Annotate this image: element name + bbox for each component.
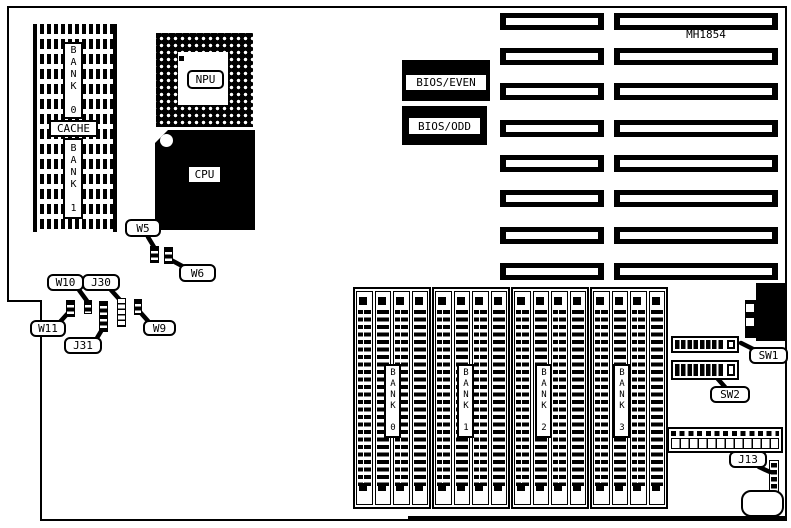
sw1-switch-positions [675,340,724,349]
simm-socket [435,291,452,505]
expansion-slot [500,120,604,137]
keyboard-connector-notch [746,318,754,326]
expansion-slot [614,263,778,280]
slot-stripe [620,125,772,132]
jumper-w10 [84,300,92,314]
cache-bank0-label: BANK 0 [63,42,83,119]
expansion-slot [500,13,604,30]
expansion-slot [500,263,604,280]
sw2-switch-positions [675,364,724,376]
callout-j13: J13 [729,451,767,468]
npu-chip: NPU [156,33,253,127]
npu-label: NPU [187,70,224,89]
rounded-component-outline [741,490,784,517]
simm-socket [570,291,587,505]
slot-stripe [620,160,772,167]
simm-bank0-label: BANK 0 [384,364,401,438]
simm-socket [649,291,666,505]
expansion-slot [500,48,604,65]
simm-socket [356,291,373,505]
sw1-end-box [727,340,735,349]
dip-switch-sw2 [671,360,739,380]
expansion-slot [614,120,778,137]
keyboard-connector-notch [746,304,754,312]
board-edge-thick [408,516,786,521]
simm-bank2-label: BANK 2 [535,364,552,438]
slot-stripe [620,268,772,275]
slot-stripe [506,268,598,275]
expansion-slot [614,155,778,172]
slot-stripe [506,18,598,25]
connector-socket-row [671,438,779,449]
cpu-label: CPU [189,167,220,182]
slot-stripe [620,195,772,202]
slot-stripe [506,88,598,95]
slot-stripe [506,195,598,202]
simm-bank3-label: BANK 3 [613,364,630,438]
connector-pin-row [671,431,779,436]
slot-stripe [506,160,598,167]
expansion-slot [500,227,604,244]
edge-pin-connector [667,427,783,453]
slot-stripe [620,232,772,239]
callout-w5: W5 [125,219,161,237]
slot-stripe [620,88,772,95]
jumper-w5 [150,246,159,263]
npu-pin1-dot [179,56,184,61]
simm-socket [593,291,610,505]
slot-stripe [506,125,598,132]
bios-odd-label: BIOS/ODD [407,116,482,136]
expansion-slot [614,83,778,100]
slot-stripe [620,53,772,60]
jumper-w11 [66,300,75,317]
cpu-chip: CPU [155,130,255,230]
callout-j30: J30 [82,274,120,291]
expansion-slot [500,190,604,207]
motherboard-diagram: BANK 0 CACHE BANK 1 NPU CPU BIOS/EVEN BI… [0,0,791,528]
cache-bank1-label: BANK 1 [63,138,83,219]
jumper-w6 [164,247,173,264]
expansion-slot [614,190,778,207]
expansion-slot [614,13,778,30]
keyboard-connector [756,283,785,341]
simm-socket [630,291,647,505]
callout-sw2: SW2 [710,386,750,403]
simm-socket [472,291,489,505]
header-j30 [117,298,126,327]
jumper-w9 [134,299,142,315]
simm-socket [412,291,429,505]
header-j31 [99,301,108,332]
expansion-slot [500,155,604,172]
slot-stripe [620,18,772,25]
simm-socket [491,291,508,505]
callout-sw1: SW1 [749,347,788,364]
cache-label: CACHE [49,120,98,137]
simm-socket [514,291,531,505]
bios-even-label: BIOS/EVEN [404,73,488,92]
simm-socket [551,291,568,505]
header-j13 [769,460,779,492]
simm-bank1-label: BANK 1 [457,364,474,438]
expansion-slot [614,48,778,65]
slot-stripe [506,232,598,239]
callout-w10: W10 [47,274,84,291]
callout-j31: J31 [64,337,102,354]
callout-w6: W6 [179,264,216,282]
slot-stripe [506,53,598,60]
sw2-end-box [727,364,735,376]
expansion-slot [614,227,778,244]
callout-w11: W11 [30,320,66,337]
expansion-slot [500,83,604,100]
callout-w9: W9 [143,320,176,336]
dip-switch-sw1 [671,336,739,353]
